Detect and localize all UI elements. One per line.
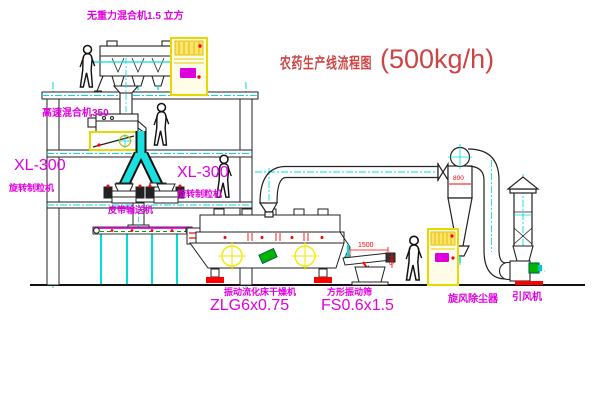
control-cabinet-upper bbox=[171, 38, 207, 95]
control-cabinet-lower bbox=[428, 229, 458, 285]
worker-second-floor bbox=[154, 103, 169, 145]
worker-ground bbox=[406, 236, 421, 280]
cad-flow-diagram: 农药生产线流程图 (500kg/h) 无重力混合机1.5 立方 高速混合机350… bbox=[0, 0, 600, 403]
vibrating-screen-drawing bbox=[343, 247, 395, 285]
diagram-title-text: 农药生产线流程图 bbox=[280, 52, 372, 73]
belt-conveyor-drawing bbox=[93, 227, 202, 284]
diagram-title: 农药生产线流程图 (500kg/h) bbox=[280, 44, 494, 75]
worker-roof bbox=[80, 45, 95, 87]
diagram-title-capacity: (500kg/h) bbox=[380, 44, 494, 75]
induced-draft-fan-drawing bbox=[500, 246, 546, 285]
worker-third-floor bbox=[217, 155, 232, 197]
exhaust-duct bbox=[255, 163, 452, 217]
fan-suction-pipe bbox=[467, 149, 506, 279]
fluid-bed-dryer-drawing bbox=[190, 209, 351, 283]
